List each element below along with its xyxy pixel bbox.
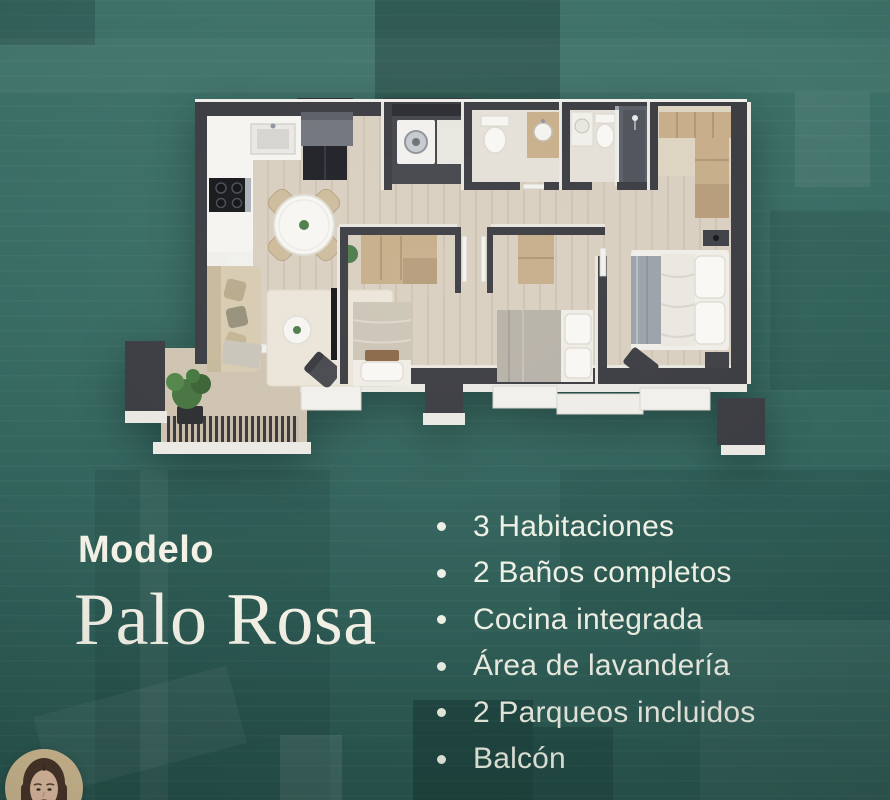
toilet	[596, 124, 614, 148]
model-label: Modelo	[78, 531, 377, 569]
bullet-icon	[437, 569, 446, 578]
title-block: Modelo Palo Rosa	[78, 531, 377, 657]
sofa	[207, 266, 262, 372]
feature-item: 3 Habitaciones	[437, 511, 756, 542]
feature-item: Área de lavandería	[437, 651, 756, 682]
feature-label: 2 Baños completos	[473, 556, 732, 590]
feature-item: 2 Baños completos	[437, 558, 756, 589]
feature-item: Balcón	[437, 744, 756, 775]
bullet-icon	[437, 755, 446, 764]
bullet-icon	[437, 708, 446, 717]
agent-avatar	[5, 749, 83, 800]
laundry	[391, 104, 463, 184]
floorplan-svg	[125, 98, 765, 470]
feature-list: 3 Habitaciones 2 Baños completos Cocina …	[437, 511, 756, 790]
bullet-icon	[437, 522, 446, 531]
feature-item: Cocina integrada	[437, 604, 756, 635]
toilet	[484, 127, 506, 153]
bullet-icon	[437, 662, 446, 671]
bg-shape	[280, 735, 342, 800]
bg-shape	[0, 0, 95, 45]
door-leaf	[462, 236, 467, 282]
bg-shape	[375, 0, 560, 100]
feature-label: Área de lavandería	[473, 649, 730, 683]
door-leaf	[600, 248, 606, 276]
dining-area	[265, 186, 343, 264]
door-leaf	[481, 236, 486, 282]
feature-label: Balcón	[473, 742, 566, 776]
bathroom-2	[569, 106, 649, 186]
woman-portrait	[5, 749, 83, 800]
bg-shape	[795, 92, 870, 187]
bullet-icon	[437, 615, 446, 624]
flyer-canvas: Modelo Palo Rosa 3 Habitaciones 2 Baños …	[0, 0, 890, 800]
stove	[209, 178, 251, 212]
nightstand	[705, 352, 729, 368]
feature-label: 2 Parqueos incluidos	[473, 696, 756, 730]
model-name: Palo Rosa	[74, 583, 377, 657]
bathroom-1	[471, 110, 561, 189]
floorplan-render	[125, 98, 765, 470]
feature-label: 3 Habitaciones	[473, 510, 674, 544]
bg-shape	[0, 38, 890, 93]
bg-shape	[770, 210, 890, 390]
feature-item: 2 Parqueos incluidos	[437, 697, 756, 728]
feature-label: Cocina integrada	[473, 603, 703, 637]
